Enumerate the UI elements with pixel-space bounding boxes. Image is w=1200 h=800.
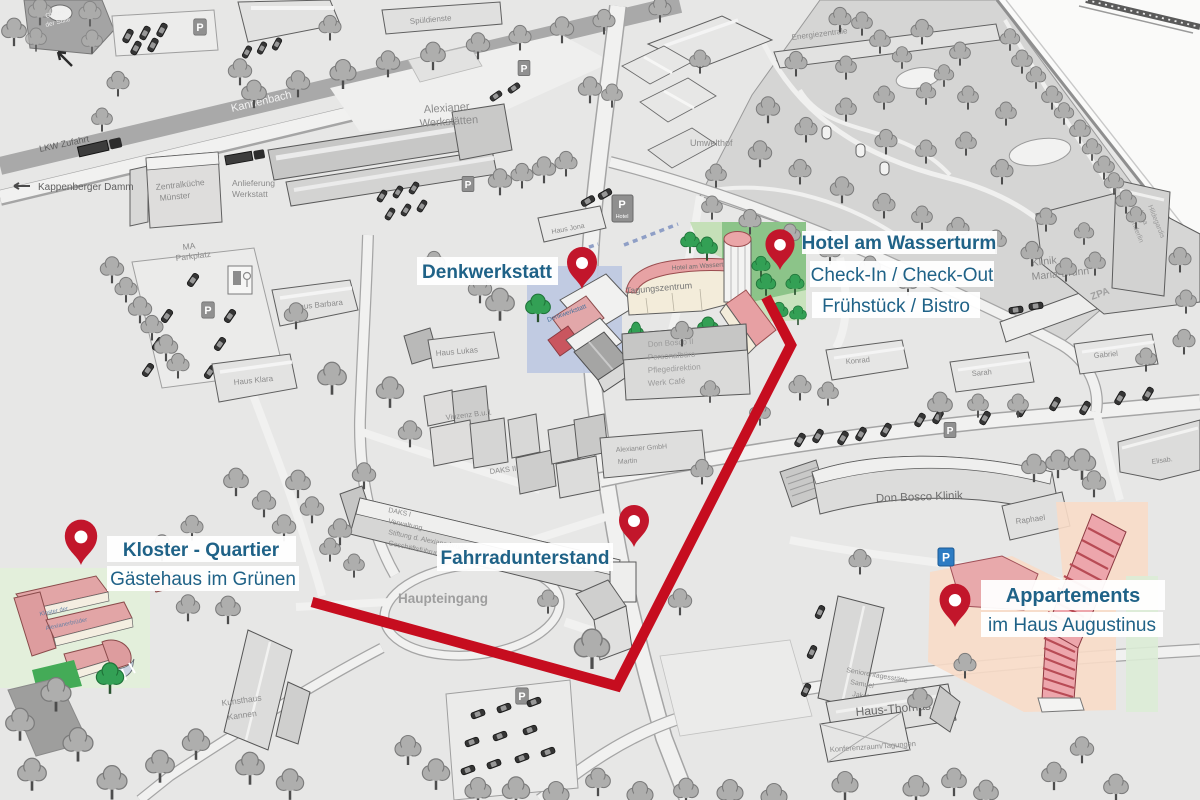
svg-text:Appartements: Appartements <box>1006 585 1140 607</box>
svg-text:Gästehaus im Grünen: Gästehaus im Grünen <box>110 569 296 590</box>
svg-text:Check-In / Check-Out: Check-In / Check-Out <box>811 265 994 286</box>
svg-text:Hotel: Hotel <box>616 214 629 220</box>
svg-text:Anlieferung: Anlieferung <box>232 178 275 188</box>
svg-text:Denkwerkstatt: Denkwerkstatt <box>422 262 553 283</box>
svg-text:Umwelthof: Umwelthof <box>690 138 733 148</box>
svg-text:Kappenberger Damm: Kappenberger Damm <box>38 182 134 193</box>
svg-text:P: P <box>942 551 950 565</box>
svg-text:Martin: Martin <box>618 458 638 466</box>
svg-text:Sarah: Sarah <box>971 367 992 378</box>
svg-text:Haupteingang: Haupteingang <box>398 591 488 606</box>
svg-text:P: P <box>618 199 625 211</box>
svg-text:Hotel am Wasserturm: Hotel am Wasserturm <box>802 233 997 254</box>
svg-text:im Haus Augustinus: im Haus Augustinus <box>988 615 1156 636</box>
svg-text:Werkstatt: Werkstatt <box>232 189 268 199</box>
svg-text:Frühstück / Bistro: Frühstück / Bistro <box>822 296 970 317</box>
svg-text:Fahrradunterstand: Fahrradunterstand <box>441 548 610 569</box>
svg-text:Kloster - Quartier: Kloster - Quartier <box>123 540 280 561</box>
